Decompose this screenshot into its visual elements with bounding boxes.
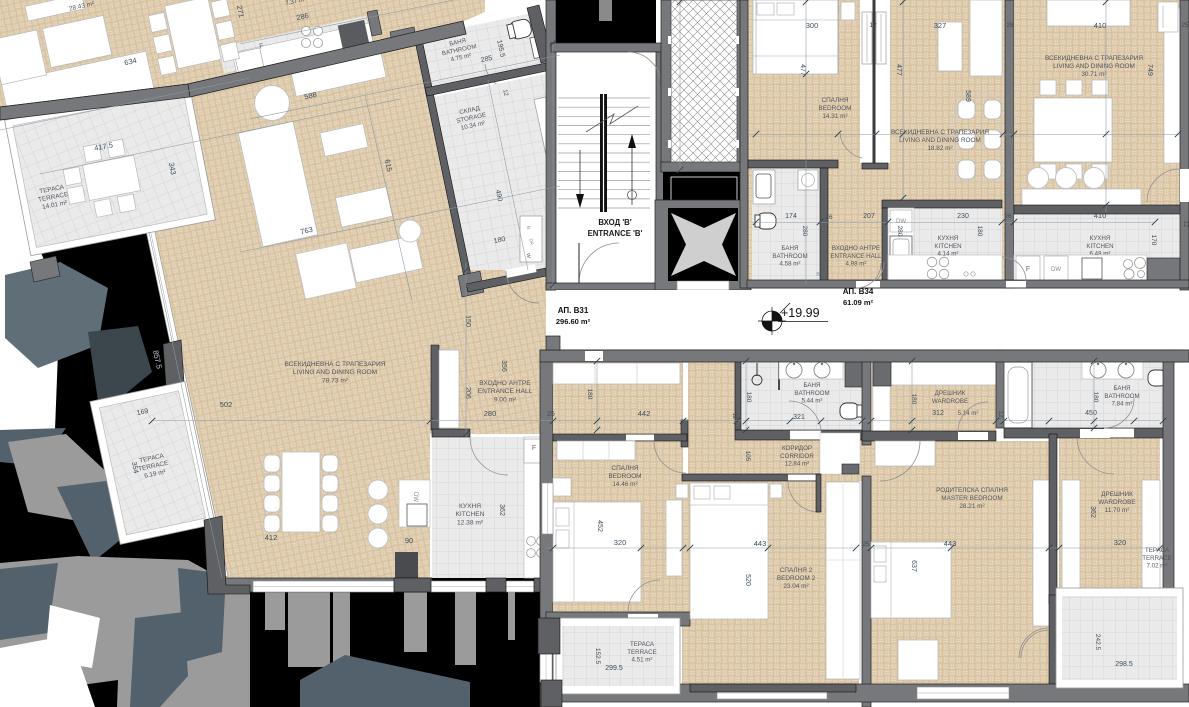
svg-text:356: 356 <box>500 360 507 372</box>
svg-text:230: 230 <box>957 213 969 220</box>
svg-text:26: 26 <box>825 214 833 221</box>
svg-text:61.09 m²: 61.09 m² <box>843 298 874 307</box>
svg-text:12: 12 <box>731 413 737 420</box>
svg-text:152.5: 152.5 <box>594 648 601 665</box>
svg-text:DW: DW <box>1051 267 1061 273</box>
svg-text:320: 320 <box>614 538 627 547</box>
svg-text:450: 450 <box>1085 410 1097 417</box>
svg-text:520: 520 <box>744 574 751 586</box>
svg-text:362: 362 <box>1089 506 1096 518</box>
svg-text:DW: DW <box>896 219 906 225</box>
svg-text:F: F <box>1026 266 1030 273</box>
svg-text:280: 280 <box>896 226 903 237</box>
svg-text:312: 312 <box>932 410 944 417</box>
svg-text:410: 410 <box>1094 21 1107 30</box>
svg-text:207: 207 <box>863 213 875 220</box>
svg-text:ВХОД 'В': ВХОД 'В' <box>598 218 631 227</box>
svg-text:ENTRANCE 'В': ENTRANCE 'В' <box>588 229 643 238</box>
svg-text:СПАЛНЯBEDROOM14.46 m²: СПАЛНЯBEDROOM14.46 m² <box>608 465 641 488</box>
svg-text:443: 443 <box>754 539 767 548</box>
svg-text:321: 321 <box>793 414 805 421</box>
svg-text:F: F <box>532 445 536 452</box>
svg-text:25: 25 <box>1181 22 1189 29</box>
svg-text:410: 410 <box>1094 211 1107 220</box>
svg-text:442: 442 <box>638 409 651 418</box>
svg-text:105: 105 <box>744 451 751 462</box>
svg-text:296.60 m²: 296.60 m² <box>556 317 591 326</box>
svg-text:320: 320 <box>1114 538 1127 547</box>
svg-text:443: 443 <box>944 539 957 548</box>
svg-text:180: 180 <box>910 394 917 405</box>
svg-text:327: 327 <box>934 21 947 30</box>
svg-text:452: 452 <box>596 520 603 532</box>
svg-text:174: 174 <box>785 213 797 220</box>
svg-text:+19.99: +19.99 <box>781 306 820 320</box>
svg-text:26: 26 <box>1006 22 1014 29</box>
svg-text:242.5: 242.5 <box>1094 634 1101 651</box>
svg-text:КУХНЯKITCHEN6.48 m²: КУХНЯKITCHEN6.48 m² <box>1086 235 1113 258</box>
svg-text:299.5: 299.5 <box>605 665 623 672</box>
svg-text:180: 180 <box>976 226 983 237</box>
svg-text:ДРЕШНИКWARDROBE: ДРЕШНИКWARDROBE <box>932 390 968 405</box>
svg-text:26: 26 <box>1004 213 1012 220</box>
svg-text:170: 170 <box>1150 235 1157 246</box>
svg-text:749: 749 <box>1146 64 1153 76</box>
svg-text:5.14 m²: 5.14 m² <box>958 410 979 417</box>
svg-text:589: 589 <box>964 90 971 102</box>
svg-text:362: 362 <box>498 504 505 516</box>
svg-text:477: 477 <box>799 64 806 76</box>
svg-text:АП. B31: АП. B31 <box>558 306 589 315</box>
svg-text:477: 477 <box>895 64 902 76</box>
svg-text:180: 180 <box>1092 392 1099 403</box>
svg-text:412: 412 <box>265 533 278 542</box>
svg-text:206: 206 <box>464 387 471 399</box>
svg-text:КУХНЯKITCHEN4.14 m²: КУХНЯKITCHEN4.14 m² <box>934 235 961 258</box>
svg-text:25: 25 <box>547 411 555 418</box>
svg-text:280: 280 <box>801 226 808 237</box>
svg-text:ТЕРАСАTERRACE4.51 m²: ТЕРАСАTERRACE4.51 m² <box>627 641 657 664</box>
svg-text:300: 300 <box>806 21 819 30</box>
svg-text:280: 280 <box>484 409 497 418</box>
svg-text:12: 12 <box>869 22 877 29</box>
svg-text:502: 502 <box>220 400 233 409</box>
svg-text:12: 12 <box>1182 221 1188 228</box>
svg-text:298.5: 298.5 <box>1115 661 1133 668</box>
svg-text:25: 25 <box>862 541 870 548</box>
svg-text:180: 180 <box>586 389 593 400</box>
svg-text:СПАЛНЯBEDROOM14.31 m²: СПАЛНЯBEDROOM14.31 m² <box>818 97 851 120</box>
svg-text:КУХНЯKITCHEN12.38 m²: КУХНЯKITCHEN12.38 m² <box>456 503 485 526</box>
svg-text:90: 90 <box>405 536 413 545</box>
svg-text:DW: DW <box>412 492 418 502</box>
svg-text:150: 150 <box>464 315 471 327</box>
svg-text:637: 637 <box>910 560 917 572</box>
svg-text:12: 12 <box>997 411 1003 418</box>
